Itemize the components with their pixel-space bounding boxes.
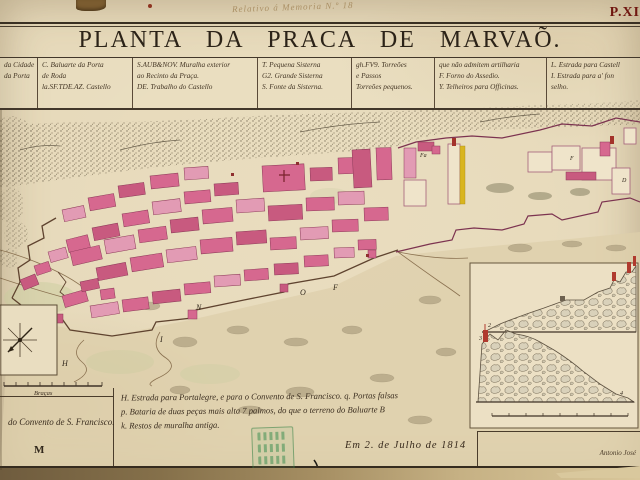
stamp-row xyxy=(258,455,288,464)
divider-signature-top xyxy=(477,431,640,432)
legend-column: L. Estrada para Castell I. Estrada para … xyxy=(547,58,640,108)
compass-rose xyxy=(0,305,57,375)
torn-bottom-edge xyxy=(0,468,640,480)
legend-column: S.AUB&NOV. Muralha exterior ao Recinto d… xyxy=(133,58,258,108)
map-label-fa: Fa xyxy=(420,153,427,159)
signature: Antonio José xyxy=(556,449,636,457)
top-rule xyxy=(0,22,640,24)
profile-label-4: 4 xyxy=(620,391,623,397)
map-label-f-wall: F xyxy=(333,284,338,292)
divider-vertical-signature xyxy=(477,431,478,467)
red-speck xyxy=(148,4,152,8)
plate-number: P.XI xyxy=(610,5,640,21)
legend-column: que não admitem artilharia F. Forno do A… xyxy=(435,58,547,108)
map-notes: H. Estrada para Portalegre, e para o Con… xyxy=(121,388,477,433)
stamp-row xyxy=(258,443,288,452)
profile-sections xyxy=(470,256,638,428)
yellow-wall-segment xyxy=(460,146,465,204)
paper-stain xyxy=(76,0,106,11)
legend-column: T. Pequena Sisterna G2. Grande Sisterna … xyxy=(258,58,352,108)
legend-column: gh.FV9. Torreões e Passos Torreões peque… xyxy=(352,58,435,108)
profile-label-3: 3 xyxy=(479,336,482,342)
bottom-left-caption: do Convento de S. Francisco. xyxy=(8,417,114,427)
map-title: PLANTA DA PRACA DE MARVAÕ. xyxy=(0,27,640,54)
map-label-h: H xyxy=(62,360,68,368)
legend-table: da Cidade da Porta C. Baluarte da Porta … xyxy=(0,57,640,110)
legend-column: da Cidade da Porta xyxy=(0,58,38,108)
map-label-f-castle: F xyxy=(570,156,574,162)
divider-vertical-left xyxy=(113,388,114,467)
map-label-o: O xyxy=(300,289,306,297)
map-label-i: I xyxy=(160,336,163,344)
map-label-m: M xyxy=(34,445,44,456)
sheet-left-edge xyxy=(0,110,2,470)
profile-label-2: 2 xyxy=(488,323,491,329)
divider-left-cell-top xyxy=(0,396,113,397)
map-sheet: .b1{fill:#d6688f}.b2{fill:#c85a7f}.b3{fi… xyxy=(0,0,640,480)
map-label-d: D xyxy=(622,178,626,184)
legend-column: C. Baluarte da Porta de Roda la.SF.TDE.A… xyxy=(38,58,133,108)
date-line: Em 2. de Julho de 1814 xyxy=(345,440,466,451)
stamp-row xyxy=(257,431,287,440)
map-label-n: N xyxy=(196,304,201,312)
castle-walls xyxy=(396,118,640,252)
